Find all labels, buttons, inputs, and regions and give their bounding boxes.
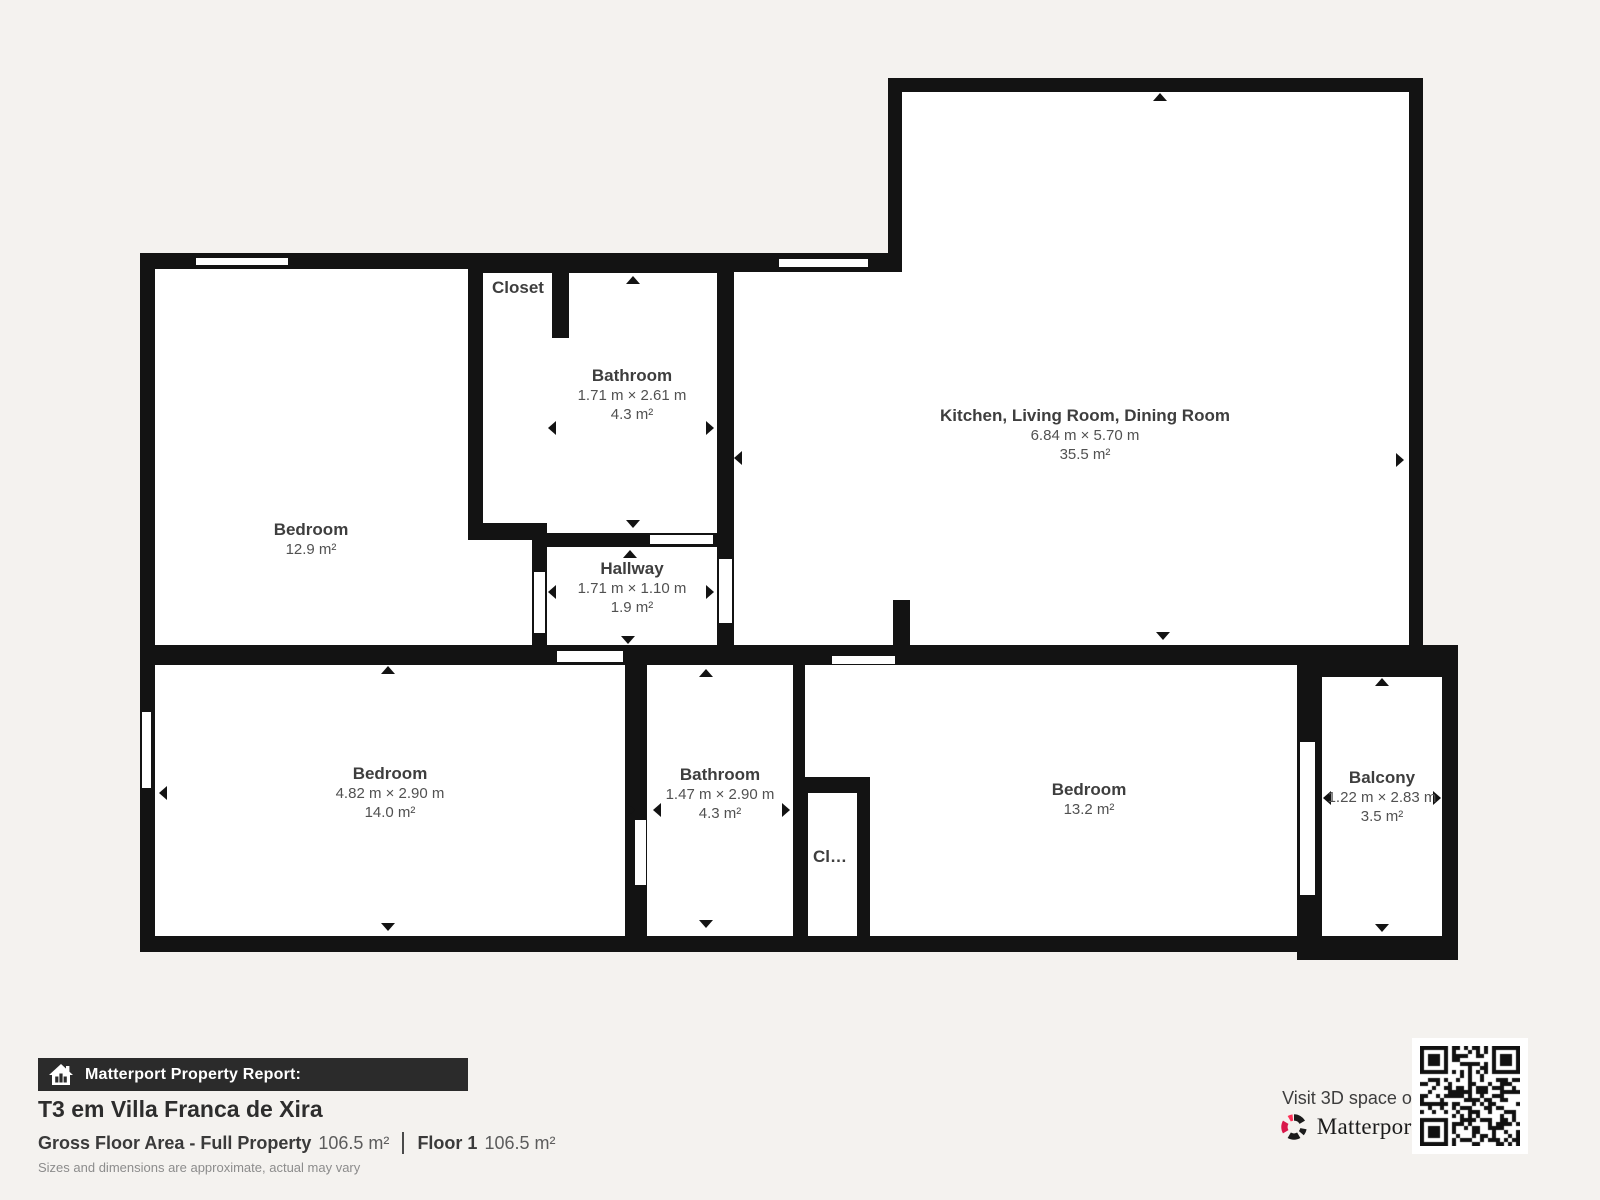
room-area: 1.9 m² [578,598,687,617]
room-title: Bathroom [578,365,687,386]
door-arrow [381,666,395,674]
room-kitchen-living-dining [902,92,1409,645]
room-area: 4.3 m² [578,405,687,424]
room-area: 3.5 m² [1328,807,1437,826]
window-entry-top [779,259,868,267]
door-balcony [1300,742,1315,895]
room-area: 14.0 m² [336,803,445,822]
floor-label: Floor 1 [417,1133,477,1154]
gross-floor-area-label: Gross Floor Area - Full Property [38,1133,311,1154]
door-arrow [699,669,713,677]
room-label-closet-top: Closet [492,277,544,298]
wall-stub-kitchen [893,600,910,645]
door-arrow [699,920,713,928]
room-label-balcony: Balcony 1.22 m × 2.83 m 3.5 m² [1328,767,1437,826]
qr-code [1420,1046,1520,1146]
room-title: Bedroom [274,519,349,540]
window-bedroom-top-left [196,258,288,265]
door-arrow [1156,632,1170,640]
room-label-bedroom-top-left: Bedroom 12.9 m² [274,519,349,559]
room-label-hallway: Hallway 1.71 m × 1.10 m 1.9 m² [578,558,687,617]
door-arrow [734,451,742,465]
report-header-label: Matterport Property Report: [85,1066,301,1084]
room-bathroom-top-ext [547,338,569,533]
property-title: T3 em Villa Franca de Xira [38,1096,323,1123]
room-dims: 1.22 m × 2.83 m [1328,788,1437,807]
room-dims: 1.71 m × 2.61 m [578,386,687,405]
room-dims: 6.84 m × 5.70 m [940,426,1230,445]
door-arrow [782,803,790,817]
door-arrow [548,421,556,435]
door-arrow [621,636,635,644]
door-arrow [653,803,661,817]
room-dims: 4.82 m × 2.90 m [336,784,445,803]
door-arrow [706,421,714,435]
room-title: Bedroom [336,763,445,784]
room-area: 13.2 m² [1052,800,1127,819]
door-arrow [548,585,556,599]
room-label-bedroom-bottom-left: Bedroom 4.82 m × 2.90 m 14.0 m² [336,763,445,822]
disclaimer-text: Sizes and dimensions are approximate, ac… [38,1160,360,1175]
door-bathroom-top [650,535,713,544]
door-arrow [159,786,167,800]
floorplan-page: { "plan": { "rooms": [ {"name": "kitchen… [0,0,1600,1200]
window-bedroom-bottom-left [142,712,151,788]
door-hallway-bottom [557,651,623,662]
door-arrow [1375,678,1389,686]
room-label-bathroom-top: Bathroom 1.71 m × 2.61 m 4.3 m² [578,365,687,424]
door-hallway-right [719,559,732,623]
room-area: 12.9 m² [274,540,349,559]
door-bedroom-bottom-right [832,656,895,664]
room-label-kitchen: Kitchen, Living Room, Dining Room 6.84 m… [940,405,1230,464]
room-title: Hallway [578,558,687,579]
room-title: Balcony [1328,767,1437,788]
door-arrow [623,550,637,558]
door-arrow [1375,924,1389,932]
door-bathroom-bottom [635,820,646,885]
door-arrow [1396,453,1404,467]
floor-area-row: Gross Floor Area - Full Property 106.5 m… [38,1132,556,1154]
room-bedroom-top-left [155,269,468,645]
floor-value: 106.5 m² [484,1133,555,1154]
room-area: 35.5 m² [940,445,1230,464]
house-chart-icon [49,1064,73,1085]
door-arrow [626,520,640,528]
door-arrow [626,276,640,284]
room-title: Cl… [813,846,847,867]
room-dims: 1.71 m × 1.10 m [578,579,687,598]
matterport-logo-icon [1279,1112,1309,1142]
room-title: Bedroom [1052,779,1127,800]
room-title: Bathroom [666,764,775,785]
room-dims: 1.47 m × 2.90 m [666,785,775,804]
door-arrow [1153,93,1167,101]
room-title: Closet [492,277,544,298]
room-title: Kitchen, Living Room, Dining Room [940,405,1230,426]
gross-floor-area-value: 106.5 m² [318,1133,389,1154]
divider [402,1132,404,1154]
qr-code-box [1412,1038,1528,1154]
room-kitchen-entry [734,272,904,645]
room-area: 4.3 m² [666,804,775,823]
room-label-closet-small: Cl… [813,846,847,867]
door-arrow [706,585,714,599]
room-bedroom-top-left-ext [468,540,532,645]
room-label-bathroom-bottom: Bathroom 1.47 m × 2.90 m 4.3 m² [666,764,775,823]
floorplan: Kitchen, Living Room, Dining Room 6.84 m… [0,0,1600,1010]
door-hallway-left [534,572,545,633]
report-header-bar: Matterport Property Report: [38,1058,468,1091]
room-closet-top [483,273,552,523]
matterport-wordmark: Matterport® [1317,1114,1426,1140]
room-label-bedroom-bottom-right: Bedroom 13.2 m² [1052,779,1127,819]
door-arrow [627,803,635,817]
door-arrow [381,923,395,931]
